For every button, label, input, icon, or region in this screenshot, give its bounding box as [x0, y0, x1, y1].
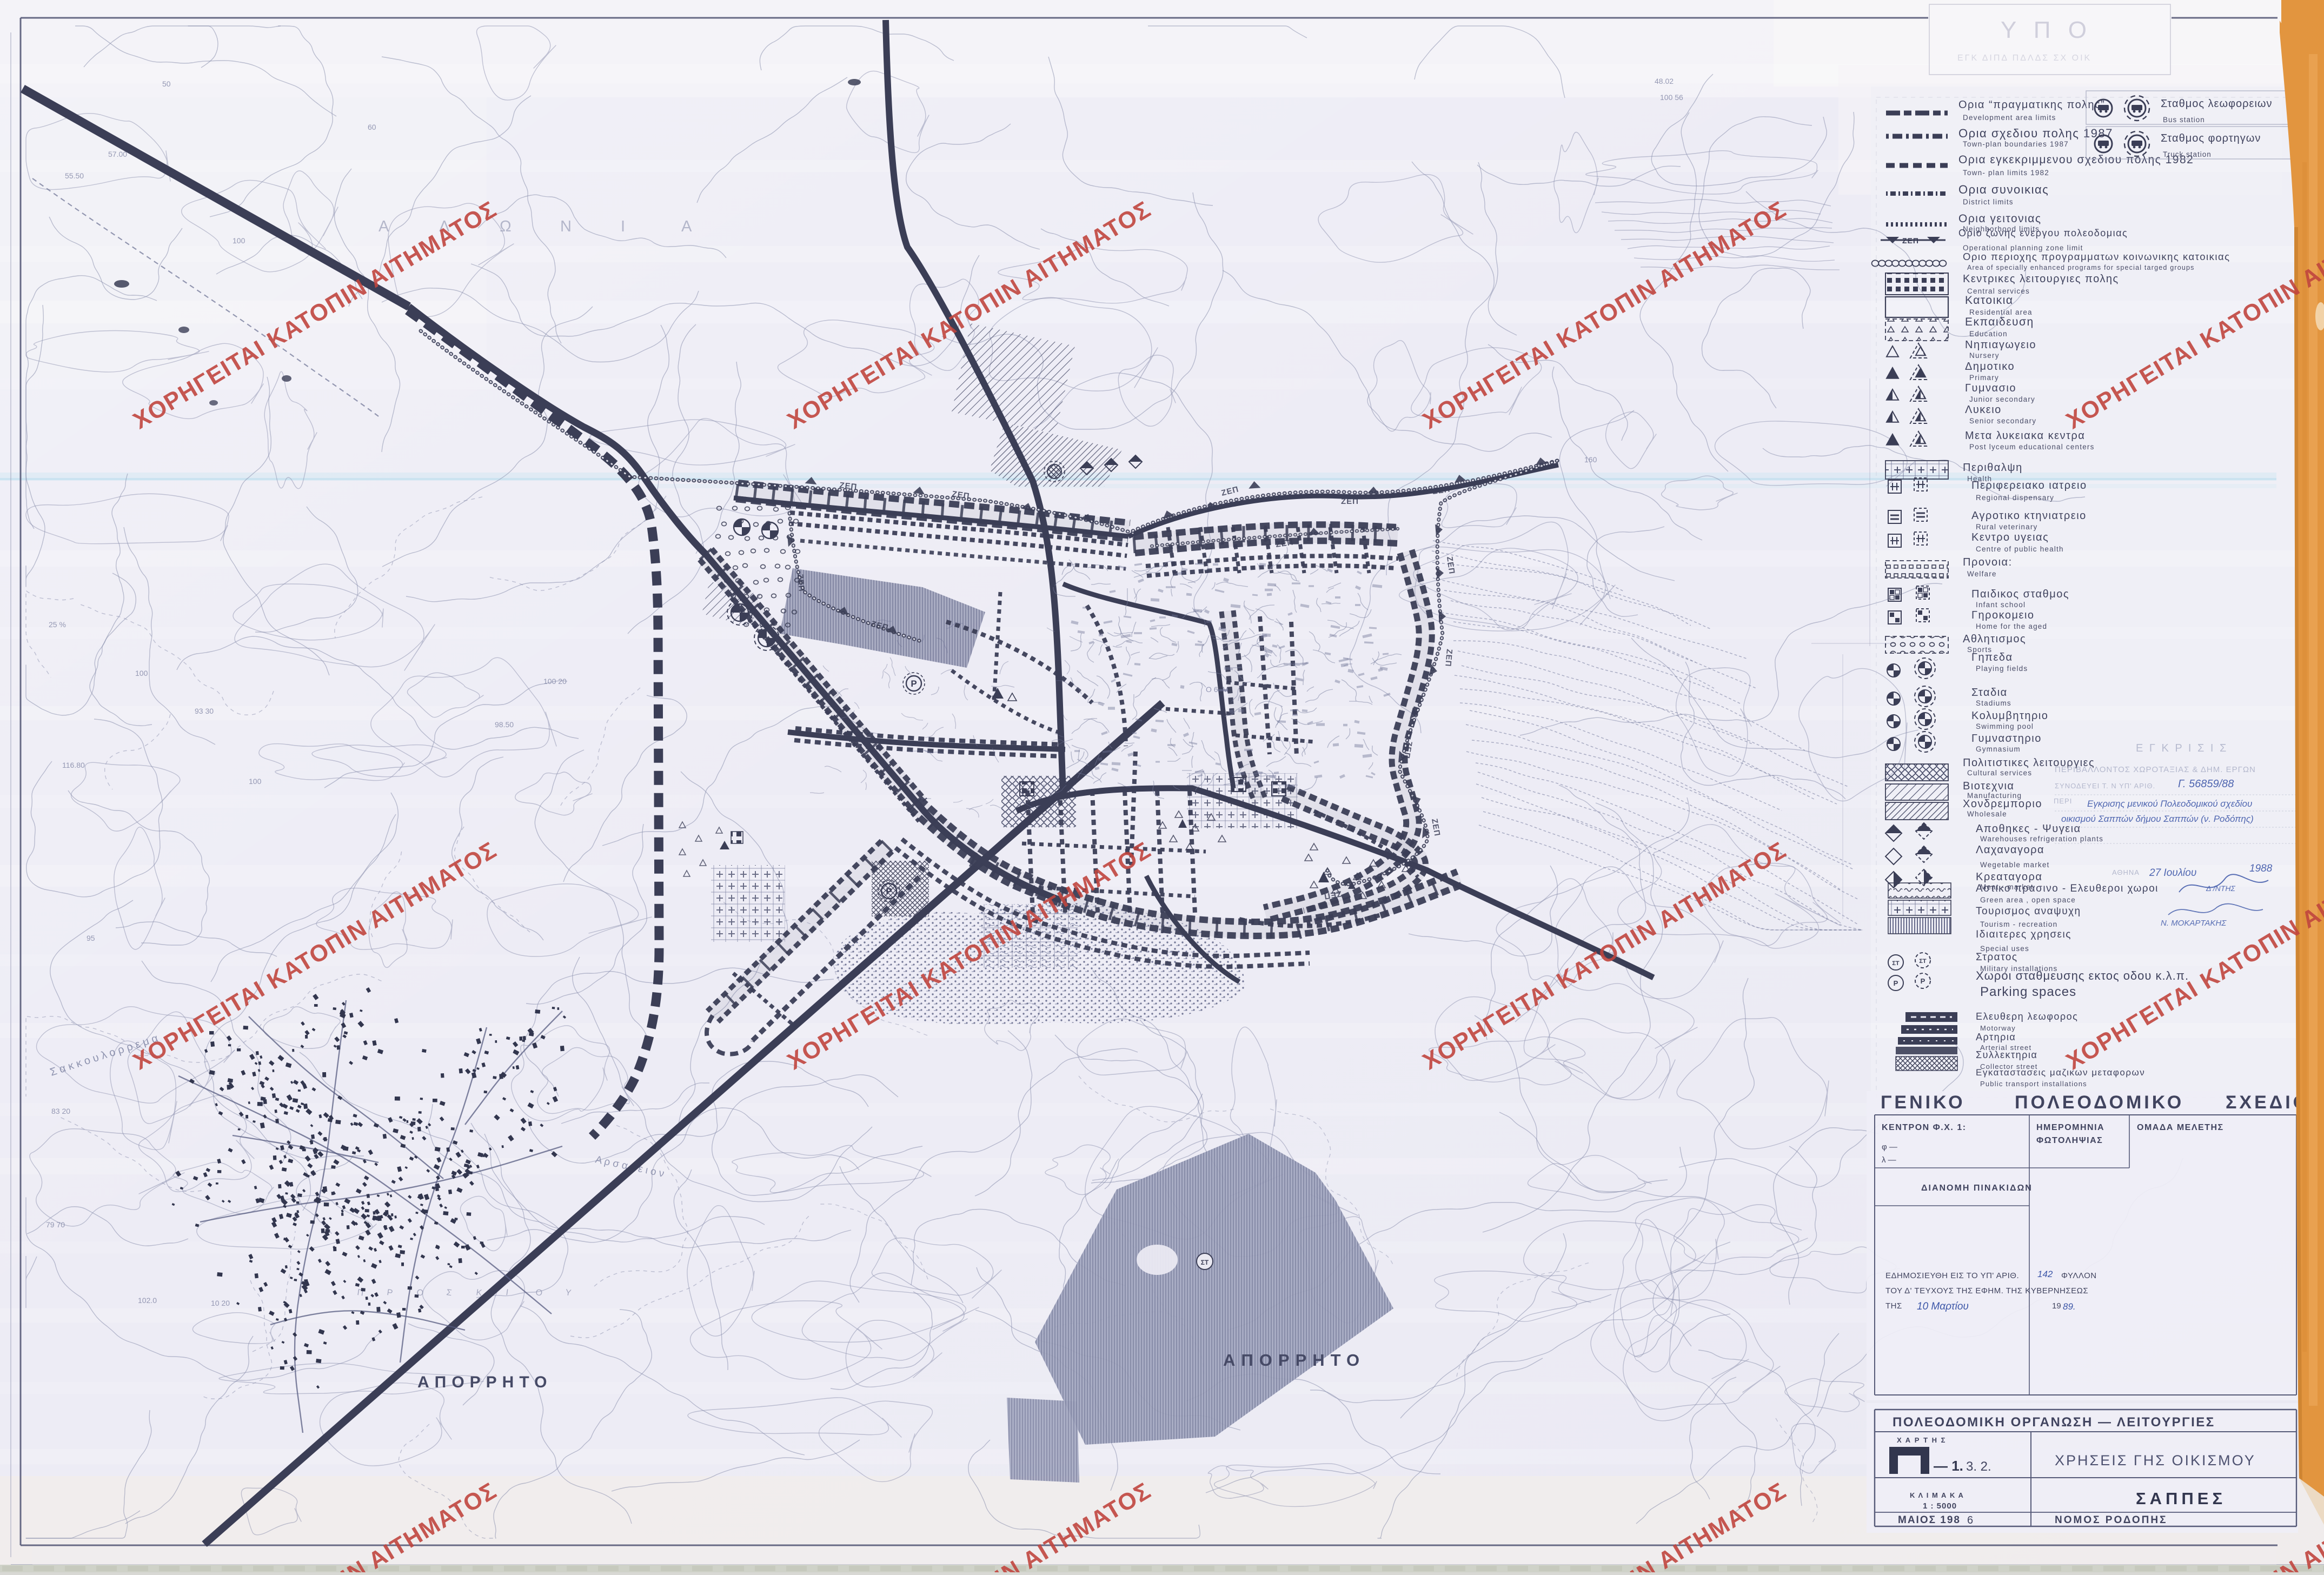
svg-text:Γηπεδα: Γηπεδα: [1971, 652, 2013, 663]
svg-text:Welfare: Welfare: [1967, 570, 1997, 578]
svg-text:Οριο ζωνης ενεργου πολεοδομια: Οριο ζωνης ενεργου πολεοδομιας: [1958, 228, 2128, 238]
svg-text:Nursery: Nursery: [1969, 351, 2000, 360]
svg-text:Κεντρο υγειας: Κεντρο υγειας: [1971, 531, 2049, 543]
svg-text:89.: 89.: [2063, 1301, 2076, 1312]
svg-text:ΦΥΛΛΟΝ: ΦΥΛΛΟΝ: [2061, 1271, 2097, 1280]
svg-text:Motorway: Motorway: [1980, 1024, 2016, 1032]
svg-text:Town- plan limits 1982: Town- plan limits 1982: [1963, 169, 2049, 177]
svg-text:ΗΜΕΡΟΜΗΝΙΑ: ΗΜΕΡΟΜΗΝΙΑ: [2036, 1123, 2104, 1132]
svg-text:27 Ιουλίου: 27 Ιουλίου: [2149, 867, 2196, 879]
svg-text:ΠΟΛΕΟΔΟΜΙΚΗ ΟΡΓΑΝΩΣΗ — ΛΕΙΤΟΥ: ΠΟΛΕΟΔΟΜΙΚΗ ΟΡΓΑΝΩΣΗ — ΛΕΙΤΟΥΡΓΙΕΣ: [1893, 1415, 2215, 1430]
svg-text:3. 2.: 3. 2.: [1966, 1459, 1991, 1474]
svg-text:Χ Α Ρ Τ Η Σ: Χ Α Ρ Τ Η Σ: [1897, 1436, 1946, 1444]
svg-text:ΖΕΠ: ΖΕΠ: [1443, 649, 1454, 667]
svg-text:Parking spaces: Parking spaces: [1980, 985, 2076, 999]
svg-text:Tourism - recreation: Tourism - recreation: [1980, 920, 2057, 928]
svg-text:Κεντρικες λειτουργιες πολης: Κεντρικες λειτουργιες πολης: [1963, 273, 2119, 285]
svg-text:98.50: 98.50: [495, 720, 514, 729]
svg-text:Junior secondary: Junior secondary: [1969, 395, 2035, 403]
svg-text:Centre of public health: Centre of public health: [1976, 545, 2064, 553]
svg-text:116.80: 116.80: [62, 761, 85, 769]
svg-text:ΣΤ: ΣΤ: [1201, 1259, 1209, 1266]
svg-text:Ορια σχεδιου πολης 1987: Ορια σχεδιου πολης 1987: [1958, 127, 2113, 140]
svg-text:6: 6: [1967, 1514, 1973, 1526]
svg-text:Δημοτικο: Δημοτικο: [1965, 361, 2015, 373]
svg-text:10 Μαρτίου: 10 Μαρτίου: [1917, 1301, 1969, 1312]
svg-text:100 20: 100 20: [543, 677, 567, 686]
svg-text:ΑΠΟΡΡΗΤΟ: ΑΠΟΡΡΗΤΟ: [1223, 1351, 1365, 1370]
svg-text:Rural veterinary: Rural veterinary: [1976, 523, 2037, 531]
svg-text:100: 100: [135, 669, 148, 677]
svg-text:ΤΗΣ: ΤΗΣ: [1885, 1301, 1902, 1311]
svg-text:93 30: 93 30: [195, 707, 214, 715]
svg-text:50: 50: [162, 79, 171, 88]
svg-text:ΣΤ: ΣΤ: [1919, 958, 1927, 965]
svg-text:Εκπαιδευση: Εκπαιδευση: [1965, 316, 2034, 328]
svg-text:ΠΕΡΙΒΑΛΛΟΝΤΟΣ ΧΩΡΟΤΑΞΙΑΣ &: ΠΕΡΙΒΑΛΛΟΝΤΟΣ ΧΩΡΟΤΑΞΙΑΣ & ΔΗΜ. ΕΡΓΩΝ: [2055, 765, 2256, 774]
svg-text:Gymnasium: Gymnasium: [1976, 745, 2021, 753]
svg-text:οικισμού Σαππών δήμου Σαππών (: οικισμού Σαππών δήμου Σαππών (ν. Ροδόπης…: [2061, 814, 2254, 824]
svg-text:Χονδρεμποριο: Χονδρεμποριο: [1963, 798, 2042, 810]
svg-text:Public transport installatio: Public transport installations: [1980, 1080, 2087, 1088]
svg-text:ΖΕΠ: ΖΕΠ: [1902, 236, 1919, 245]
svg-text:1988: 1988: [2249, 863, 2273, 874]
svg-text:Περιθαλψη: Περιθαλψη: [1963, 462, 2023, 474]
svg-text:60: 60: [368, 123, 376, 131]
svg-text:Ορια γειτονιας: Ορια γειτονιας: [1958, 212, 2042, 225]
svg-text:57.00: 57.00: [108, 150, 127, 158]
svg-text:Αθλητισμος: Αθλητισμος: [1963, 633, 2026, 645]
svg-text:Wholesale: Wholesale: [1967, 810, 2007, 818]
svg-text:Παιδικος σταθμος: Παιδικος σταθμος: [1971, 588, 2069, 600]
svg-text:160: 160: [1584, 455, 1597, 464]
svg-text:Περιφερειακο ιατρειο: Περιφερειακο ιατρειο: [1971, 480, 2087, 491]
svg-text:Λυκειο: Λυκειο: [1965, 404, 2002, 416]
svg-text:100 56: 100 56: [1660, 93, 1683, 102]
svg-text:— 1.: — 1.: [1934, 1458, 1963, 1474]
svg-text:ΠΟΛΕΟΔΟΜΙΚΟ: ΠΟΛΕΟΔΟΜΙΚΟ: [2015, 1092, 2184, 1113]
svg-text:100: 100: [233, 236, 245, 245]
svg-text:Εγκαταστασεις μαζικων μεταφο: Εγκαταστασεις μαζικων μεταφορων: [1976, 1067, 2145, 1078]
svg-text:102.0: 102.0: [138, 1296, 157, 1305]
svg-text:P: P: [886, 886, 892, 896]
svg-text:Γυμναστηριο: Γυμναστηριο: [1971, 733, 2042, 745]
svg-text:ΓΕΝΙΚΟ: ΓΕΝΙΚΟ: [1881, 1092, 1966, 1113]
svg-text:Κατοικια: Κατοικια: [1965, 294, 2014, 307]
svg-text:ΖΕΠ: ΖΕΠ: [839, 481, 858, 491]
svg-text:Ορια “πραγματικης πολης”: Ορια “πραγματικης πολης”: [1958, 99, 2105, 111]
svg-text:Warehouses refrigeration pl: Warehouses refrigeration plants: [1980, 835, 2103, 843]
svg-text:Residential area: Residential area: [1969, 308, 2033, 316]
svg-text:Σταθμος λεωφορειων: Σταθμος λεωφορειων: [2161, 98, 2273, 110]
svg-text:Wegetable market: Wegetable market: [1980, 861, 2050, 869]
svg-text:ΖΕΠ: ΖΕΠ: [795, 574, 806, 592]
svg-text:Λαχαναγορα: Λαχαναγορα: [1976, 844, 2044, 856]
svg-text:19: 19: [2052, 1301, 2061, 1311]
svg-text:Εγκρισης μενικού Πολεοδομικού: Εγκρισης μενικού Πολεοδομικού σχεδίου: [2087, 799, 2252, 809]
svg-text:Ορια εγκεκριμμενου σχεδιου πολ: Ορια εγκεκριμμενου σχεδιου πολης 1982: [1958, 154, 2194, 166]
svg-text:ΖΕΠ: ΖΕΠ: [1341, 497, 1359, 506]
svg-text:Α: Α: [379, 218, 389, 235]
svg-text:Swimming pool: Swimming pool: [1976, 722, 2034, 730]
svg-text:10 20: 10 20: [211, 1299, 230, 1307]
svg-text:Σταθμος φορτηγων: Σταθμος φορτηγων: [2161, 132, 2261, 144]
svg-text:ΤΟΥ Δ' ΤΕΥΧΟΥΣ ΤΗΣ ΕΦΗΜ. ΤΗΣ Κ: ΤΟΥ Δ' ΤΕΥΧΟΥΣ ΤΗΣ ΕΦΗΜ. ΤΗΣ ΚΥΒΕΡΝΗΣΕΩΣ: [1885, 1286, 2088, 1295]
svg-text:Μετα λυκειακα κεντρα: Μετα λυκειακα κεντρα: [1965, 430, 2085, 442]
svg-text:Αγροτικο κτηνιατρειο: Αγροτικο κτηνιατρειο: [1971, 510, 2087, 522]
svg-text:Ορια συνοικιας: Ορια συνοικιας: [1958, 183, 2049, 196]
svg-text:Τουρισμος αναψυχη: Τουρισμος αναψυχη: [1976, 906, 2081, 917]
svg-text:Area of specially enhanced pr: Area of specially enhanced programs for …: [1967, 264, 2195, 271]
svg-text:Stadiums: Stadiums: [1976, 699, 2011, 707]
svg-text:Primary: Primary: [1969, 374, 1999, 382]
svg-text:Post lyceum educational cen: Post lyceum educational centers: [1969, 443, 2095, 451]
svg-text:ΟΜΑΔΑ ΜΕΛΕΤΗΣ: ΟΜΑΔΑ ΜΕΛΕΤΗΣ: [2137, 1123, 2224, 1132]
svg-text:Development area limits: Development area limits: [1963, 114, 2056, 122]
svg-text:Town-plan boundaries 1987: Town-plan boundaries 1987: [1963, 140, 2069, 148]
svg-text:ΑΘΗΝΑ: ΑΘΗΝΑ: [2112, 868, 2140, 876]
svg-text:142: 142: [2037, 1269, 2053, 1279]
svg-text:Προνοια:: Προνοια:: [1963, 556, 2013, 568]
svg-text:Ελευθερη λεωφορος: Ελευθερη λεωφορος: [1976, 1011, 2078, 1022]
svg-text:Συλλεκτηρια: Συλλεκτηρια: [1976, 1049, 2037, 1060]
svg-text:ΕΓΚ ΔΙΠΔ ΠΔΛΔΣ ΣΧ ΟΙΚ: ΕΓΚ ΔΙΠΔ ΠΔΛΔΣ ΣΧ ΟΙΚ: [1957, 54, 2091, 63]
svg-text:ΝΟΜΟΣ ΡΟΔΟΠΗΣ: ΝΟΜΟΣ ΡΟΔΟΠΗΣ: [2055, 1514, 2168, 1526]
svg-text:Στρατος: Στρατος: [1976, 952, 2018, 963]
svg-text:ΑΠΟΡΡΗΤΟ: ΑΠΟΡΡΗΤΟ: [417, 1373, 552, 1391]
svg-text:Regional dispensary: Regional dispensary: [1976, 494, 2054, 502]
svg-text:Νηπιαγωγειο: Νηπιαγωγειο: [1965, 339, 2036, 351]
svg-text:ΦΩΤΟΛΗΨΙΑΣ: ΦΩΤΟΛΗΨΙΑΣ: [2036, 1136, 2103, 1145]
svg-text:P: P: [911, 679, 917, 689]
svg-text:Ν: Ν: [560, 218, 572, 235]
svg-text:25 %: 25 %: [49, 620, 66, 629]
svg-text:Α: Α: [681, 218, 692, 235]
svg-text:Χωροι σταθμευσης εκτος οδου: Χωροι σταθμευσης εκτος οδου κ.λ.π.: [1976, 969, 2189, 982]
svg-text:95: 95: [87, 934, 95, 942]
svg-text:Αστικο πρασινο - Ελευθεροι χ: Αστικο πρασινο - Ελευθεροι χωροι: [1976, 883, 2159, 894]
svg-text:100: 100: [249, 777, 262, 786]
svg-text:48.02: 48.02: [1655, 77, 1674, 85]
svg-text:Ν. ΜΟΚΑΡΤΑΚΗΣ: Ν. ΜΟΚΑΡΤΑΚΗΣ: [2161, 919, 2227, 928]
svg-text:Truck station: Truck station: [2163, 150, 2212, 158]
svg-text:55.50: 55.50: [65, 171, 84, 180]
svg-text:Βιοτεχνια: Βιοτεχνια: [1963, 780, 2014, 792]
svg-text:Bus station: Bus station: [2163, 116, 2205, 124]
svg-text:Cultural services: Cultural services: [1967, 769, 2032, 777]
svg-text:λ —: λ —: [1882, 1155, 1896, 1165]
svg-text:Αρτηρια: Αρτηρια: [1976, 1032, 2016, 1042]
svg-text:ΜΑΙΟΣ 198: ΜΑΙΟΣ 198: [1898, 1514, 1961, 1526]
svg-text:1 : 5000: 1 : 5000: [1923, 1501, 1957, 1511]
svg-text:Κρεαταγορα: Κρεαταγορα: [1976, 871, 2042, 883]
svg-text:ΣΑΠΠΕΣ: ΣΑΠΠΕΣ: [2136, 1489, 2226, 1508]
svg-text:ΠΕΡΙ: ΠΕΡΙ: [2054, 797, 2072, 805]
svg-text:Ο: Ο: [535, 1288, 543, 1298]
svg-text:Οριο περιοχης προγραμματων κοι: Οριο περιοχης προγραμματων κοινωνικης κα…: [1963, 251, 2230, 262]
svg-text:Ε Γ Κ Ρ Ι Σ Ι Σ: Ε Γ Κ Ρ Ι Σ Ι Σ: [2136, 742, 2228, 754]
svg-text:Γ. 56859/88: Γ. 56859/88: [2178, 778, 2234, 790]
svg-text:Αποθηκες - Ψυγεια: Αποθηκες - Ψυγεια: [1976, 823, 2081, 835]
svg-text:Green area , open space: Green area , open space: [1980, 896, 2076, 904]
svg-text:District limits: District limits: [1963, 198, 2014, 206]
svg-text:83 20: 83 20: [51, 1107, 70, 1115]
svg-text:Playing fields: Playing fields: [1976, 664, 2028, 673]
svg-text:ΧΡΗΣΕΙΣ ΓΗΣ ΟΙΚΙΣΜΟΥ: ΧΡΗΣΕΙΣ ΓΗΣ ΟΙΚΙΣΜΟΥ: [2055, 1452, 2256, 1468]
svg-text:Ω: Ω: [500, 218, 512, 235]
svg-text:ΕΔΗΜΟΣΙΕΥΘΗ ΕΙΣ ΤΟ ΥΠ' ΑΡΙΘ.: ΕΔΗΜΟΣΙΕΥΘΗ ΕΙΣ ΤΟ ΥΠ' ΑΡΙΘ.: [1885, 1271, 2019, 1280]
svg-text:P: P: [1894, 979, 1898, 987]
svg-text:Κ Λ Ι Μ Α Κ Α: Κ Λ Ι Μ Α Κ Α: [1910, 1491, 1964, 1499]
svg-text:ΚΕΝΤΡΟΝ Φ.Χ. 1:: ΚΕΝΤΡΟΝ Φ.Χ. 1:: [1882, 1123, 1967, 1132]
svg-text:Υ Π Ο: Υ Π Ο: [2001, 17, 2092, 43]
svg-text:Education: Education: [1969, 330, 2008, 338]
svg-text:ΔΙΑΝΟΜΗ ΠΙΝΑΚΙΔΩΝ: ΔΙΑΝΟΜΗ ΠΙΝΑΚΙΔΩΝ: [1921, 1184, 2033, 1193]
svg-text:79 70: 79 70: [46, 1220, 65, 1229]
svg-text:φ —: φ —: [1882, 1142, 1897, 1152]
svg-text:Home for the aged: Home for the aged: [1976, 622, 2047, 630]
svg-text:Ιδιαιτερες χρησεις: Ιδιαιτερες χρησεις: [1976, 929, 2071, 940]
svg-text:Σταδια: Σταδια: [1971, 687, 2008, 699]
svg-text:Γυμνασιο: Γυμνασιο: [1965, 382, 2016, 394]
svg-text:ΣΥΝΟΔΕΥΕΙ Τ. Ν ΥΠ' ΑΡΙΘ.: ΣΥΝΟΔΕΥΕΙ Τ. Ν ΥΠ' ΑΡΙΘ.: [2055, 782, 2155, 790]
svg-text:ΣΤ: ΣΤ: [1892, 960, 1900, 967]
svg-text:Γηροκομειο: Γηροκομειο: [1971, 609, 2035, 621]
svg-text:Infant school: Infant school: [1976, 601, 2026, 609]
svg-text:Κολυμβητηριο: Κολυμβητηριο: [1971, 710, 2048, 722]
svg-text:Ι: Ι: [621, 218, 625, 235]
svg-text:Δ /ΝΤΗΣ: Δ /ΝΤΗΣ: [2206, 884, 2235, 893]
svg-text:Senior secondary: Senior secondary: [1969, 417, 2036, 425]
svg-text:P: P: [1921, 977, 1925, 985]
